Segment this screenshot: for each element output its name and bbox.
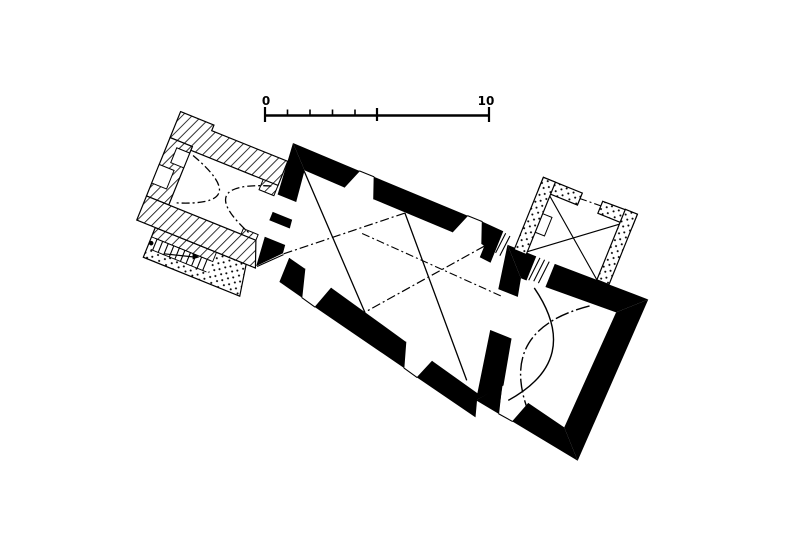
floor-plan-svg: 0 10 — [0, 0, 800, 553]
chancel-arc-west — [505, 290, 590, 417]
nave-north-wall-seg3 — [469, 222, 503, 263]
nave-west-wall-pier — [270, 212, 293, 228]
sacristy-door-line — [580, 198, 601, 207]
survey-dot — [148, 240, 154, 246]
scale-label-zero: 0 — [262, 94, 270, 108]
building-plan — [115, 41, 676, 463]
nave-south-wall-seg3 — [412, 358, 489, 417]
floor-plan-page: 0 10 — [0, 0, 800, 553]
chancel — [442, 243, 648, 463]
nave-south-wall-seg1 — [278, 258, 314, 297]
scale-label-ten: 10 — [478, 94, 495, 108]
nave-north-wall-seg2 — [366, 177, 468, 235]
chancel-east-wall — [555, 288, 649, 462]
chancel-arch-cuts — [483, 289, 527, 340]
sacristy — [514, 176, 637, 287]
scale-bar: 0 10 — [262, 94, 495, 122]
